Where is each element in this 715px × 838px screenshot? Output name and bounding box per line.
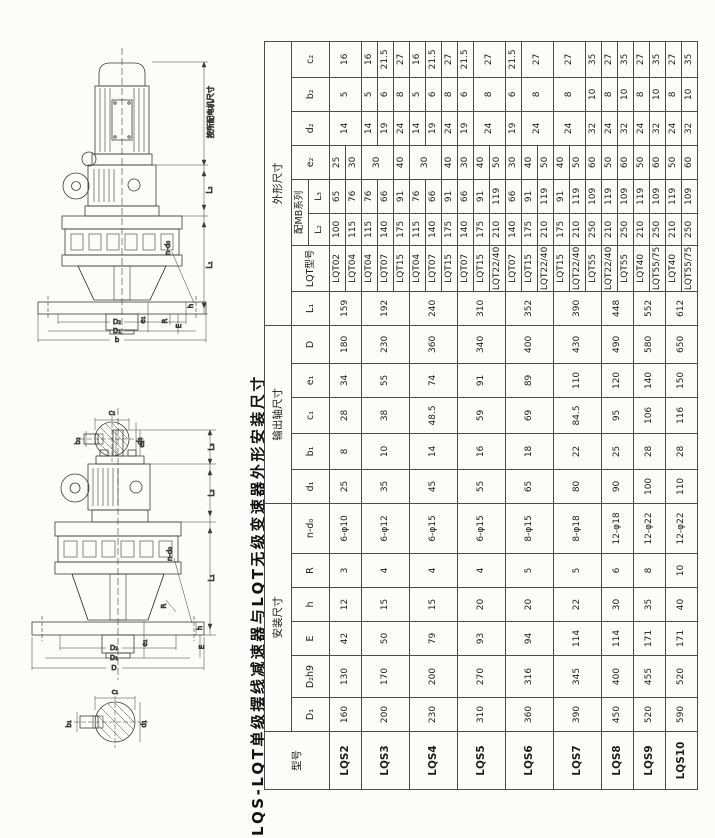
- table-cell: 30: [362, 145, 394, 179]
- table-cell: LQS10: [666, 732, 698, 790]
- table-cell: 66: [458, 179, 474, 213]
- dim-label: b₁: [65, 720, 73, 727]
- table-cell: 390: [554, 698, 602, 732]
- table-cell: 310: [458, 291, 506, 325]
- table-cell: c₂: [292, 41, 330, 77]
- table-cell: 22: [554, 588, 602, 622]
- table-cell: 8: [442, 77, 458, 111]
- table-cell: 10: [650, 77, 666, 111]
- table-cell: 3: [330, 554, 362, 588]
- table-cell: 210: [570, 213, 586, 245]
- table-cell: 10: [682, 77, 698, 111]
- table-cell: 55: [458, 469, 506, 503]
- table-cell: d₁: [292, 469, 330, 503]
- dim-label: R: [161, 318, 169, 323]
- table-cell: 8: [602, 77, 618, 111]
- table-cell: 40: [394, 145, 410, 179]
- dim-label: D₁: [110, 654, 118, 662]
- dim-label: D₂: [110, 644, 118, 652]
- table-cell: 25: [330, 145, 346, 179]
- table-cell: LQT07: [378, 245, 394, 291]
- table-cell: 552: [634, 291, 666, 325]
- table-cell: 42: [330, 622, 362, 656]
- table-cell: L₃: [309, 179, 330, 213]
- table-cell: 21.5: [426, 41, 442, 77]
- dim-label: n-d₀: [164, 241, 172, 255]
- table-cell: 24: [666, 111, 682, 145]
- table-cell: 210: [634, 213, 650, 245]
- table-cell: 32: [682, 111, 698, 145]
- table-cell: 345: [554, 656, 602, 698]
- table-cell: 8: [522, 77, 554, 111]
- table-cell: 360: [410, 325, 458, 363]
- table-cell: 10: [618, 77, 634, 111]
- table-cell: LQS6: [506, 732, 554, 790]
- table-cell: 450: [602, 698, 634, 732]
- table-cell: 119: [570, 179, 586, 213]
- table-cell: 580: [634, 325, 666, 363]
- table-cell: 22: [554, 433, 602, 469]
- table-cell: LQT22/40: [538, 245, 554, 291]
- table-cell: 119: [634, 179, 650, 213]
- dim-label: D₂: [113, 318, 121, 326]
- table-cell: 35: [634, 588, 666, 622]
- table-cell: 12-φ22: [634, 503, 666, 553]
- table-cell: 69: [506, 397, 554, 433]
- table-cell: 159: [330, 291, 362, 325]
- table-cell: 79: [410, 622, 458, 656]
- table-cell: 106: [634, 397, 666, 433]
- table-cell: 10: [362, 433, 410, 469]
- table-cell: 91: [394, 179, 410, 213]
- table-cell: 90: [602, 469, 634, 503]
- table-cell: b₂: [292, 77, 330, 111]
- dim-label: E: [175, 324, 183, 328]
- table-cell: 91: [458, 363, 506, 397]
- table-cell: 27: [602, 41, 618, 77]
- table-cell: 40: [666, 588, 698, 622]
- table-cell: 115: [362, 213, 378, 245]
- table-cell: 59: [458, 397, 506, 433]
- dimension-table: 型号安装尺寸输出轴尺寸外形尺寸D₁D₂h9EhRn-d₀d₁b₁c₁e₁DL₁L…: [264, 41, 698, 790]
- dim-label: L₃: [207, 443, 216, 450]
- table-cell: LQT02: [330, 245, 346, 291]
- dim-label: L₁: [207, 574, 216, 581]
- table-cell: 119: [666, 179, 682, 213]
- table-cell: LQT15: [522, 245, 538, 291]
- table-cell: 14: [330, 111, 362, 145]
- table-cell: 175: [394, 213, 410, 245]
- table-cell: 8-φ18: [554, 503, 602, 553]
- dim-label: c₁: [112, 688, 119, 696]
- table-cell: 18: [506, 433, 554, 469]
- dim-label: D₁: [113, 327, 121, 335]
- table-cell: 27: [522, 41, 554, 77]
- table-cell: 27: [634, 41, 650, 77]
- table-cell: 455: [634, 656, 666, 698]
- table-cell: 20: [458, 588, 506, 622]
- table-cell: 配MB系列: [292, 179, 309, 245]
- table-cell: LQT55/75: [682, 245, 698, 291]
- table-cell: 109: [682, 179, 698, 213]
- table-cell: L₁: [292, 291, 330, 325]
- table-cell: LQT40: [666, 245, 682, 291]
- dim-label: E: [198, 645, 206, 649]
- table-cell: LQT55: [586, 245, 602, 291]
- table-cell: 340: [458, 325, 506, 363]
- table-cell: 5: [330, 77, 362, 111]
- table-cell: 28: [330, 397, 362, 433]
- table-cell: e₂: [292, 145, 330, 179]
- table-cell: 590: [666, 698, 698, 732]
- table-cell: e₁: [292, 363, 330, 397]
- table-cell: LQT07: [458, 245, 474, 291]
- table-cell: 650: [666, 325, 698, 363]
- table-cell: E: [292, 622, 330, 656]
- table-cell: 520: [666, 656, 698, 698]
- table-cell: 21.5: [458, 41, 474, 77]
- table-cell: 66: [426, 179, 442, 213]
- table-cell: 240: [410, 291, 458, 325]
- table-cell: 50: [666, 145, 682, 179]
- dim-label: h: [196, 626, 204, 630]
- table-cell: 19: [458, 111, 474, 145]
- table-cell: 390: [554, 291, 602, 325]
- table-cell: 12-φ22: [666, 503, 698, 553]
- dim-label: e₁: [139, 316, 147, 323]
- table-cell: 65: [330, 179, 346, 213]
- table-cell: 316: [506, 656, 554, 698]
- table-cell: 32: [650, 111, 666, 145]
- table-cell: 5: [506, 554, 554, 588]
- table-cell: 24: [634, 111, 650, 145]
- table-cell: 250: [618, 213, 634, 245]
- table-cell: 250: [586, 213, 602, 245]
- table-cell: 27: [442, 41, 458, 77]
- table-cell: LQS7: [554, 732, 602, 790]
- table-cell: 6: [506, 77, 522, 111]
- table-cell: 6: [378, 77, 394, 111]
- table-cell: 20: [506, 588, 554, 622]
- table-cell: 50: [570, 145, 586, 179]
- table-cell: 140: [634, 363, 666, 397]
- table-cell: 8: [394, 77, 410, 111]
- table-cell: 35: [618, 41, 634, 77]
- dim-label: L₂: [207, 489, 216, 496]
- table-cell: 50: [362, 622, 410, 656]
- table-cell: 310: [458, 698, 506, 732]
- table-cell: 45: [410, 469, 458, 503]
- table-cell: 28: [634, 433, 666, 469]
- table-cell: 40: [442, 145, 458, 179]
- catalog-page: 按所配电机尺寸 L₂ L₁ n-d₀ h R E e₁ D₂ D₁ b: [0, 0, 715, 838]
- table-cell: 24: [522, 111, 554, 145]
- table-cell: 200: [362, 698, 410, 732]
- table-cell: 14: [410, 111, 426, 145]
- table-cell: 171: [666, 622, 698, 656]
- dim-label: h: [187, 304, 195, 308]
- table-cell: LQS4: [410, 732, 458, 790]
- table-cell: 94: [506, 622, 554, 656]
- table-cell: 24: [474, 111, 506, 145]
- table-cell: LQT22/40: [490, 245, 506, 291]
- table-cell: 型号: [265, 732, 330, 790]
- table-cell: 400: [602, 656, 634, 698]
- table-cell: b₁: [292, 433, 330, 469]
- table-cell: D₂h9: [292, 656, 330, 698]
- table-cell: 12: [330, 588, 362, 622]
- table-cell: 8: [330, 433, 362, 469]
- table-cell: 250: [682, 213, 698, 245]
- table-cell: 150: [666, 363, 698, 397]
- table-cell: 15: [362, 588, 410, 622]
- table-cell: 110: [554, 363, 602, 397]
- table-cell: 35: [362, 469, 410, 503]
- dim-label: c₂: [109, 409, 116, 417]
- table-cell: 84.5: [554, 397, 602, 433]
- table-cell: 210: [666, 213, 682, 245]
- drawing-variator-reducer: e₂ L₃ L₂ L₁ n-d₀ h R E e₁ D₂ D₁ D: [32, 408, 216, 680]
- dim-label: D: [111, 664, 116, 672]
- table-cell: 8: [666, 77, 682, 111]
- table-cell: 210: [602, 213, 618, 245]
- table-cell: 8: [474, 77, 506, 111]
- table-cell: 95: [602, 397, 634, 433]
- table-cell: 27: [554, 41, 586, 77]
- table-cell: 32: [618, 111, 634, 145]
- dim-label: R: [160, 603, 168, 608]
- table-cell: 109: [618, 179, 634, 213]
- table-cell: 35: [682, 41, 698, 77]
- table-cell: 6-φ12: [362, 503, 410, 553]
- table-cell: 170: [362, 656, 410, 698]
- table-cell: 30: [346, 145, 362, 179]
- table-cell: LQT40: [634, 245, 650, 291]
- table-cell: 210: [538, 213, 554, 245]
- dim-label: 按所配电机尺寸: [205, 85, 215, 138]
- table-cell: LQT15: [394, 245, 410, 291]
- table-cell: 8: [554, 77, 586, 111]
- table-cell: 76: [362, 179, 378, 213]
- table-cell: h: [292, 588, 330, 622]
- dim-label: b₂: [74, 437, 82, 444]
- table-cell: LQT型号: [292, 245, 330, 291]
- table-cell: 27: [474, 41, 506, 77]
- table-cell: 80: [554, 469, 602, 503]
- table-cell: 5: [554, 554, 602, 588]
- dim-label: n-d₀: [166, 547, 174, 561]
- table-cell: 180: [330, 325, 362, 363]
- table-cell: 119: [490, 179, 506, 213]
- table-cell: 16: [362, 41, 378, 77]
- table-cell: 93: [458, 622, 506, 656]
- table-cell: 35: [586, 41, 602, 77]
- dim-label: d₁: [140, 720, 148, 727]
- table-cell: 119: [538, 179, 554, 213]
- table-cell: 27: [394, 41, 410, 77]
- table-cell: R: [292, 554, 330, 588]
- table-cell: c₁: [292, 397, 330, 433]
- table-cell: D: [292, 325, 330, 363]
- table-cell: 6: [458, 77, 474, 111]
- table-cell: 安装尺寸: [265, 503, 292, 731]
- table-cell: 8: [634, 77, 650, 111]
- table-cell: 175: [474, 213, 490, 245]
- table-cell: 50: [490, 145, 506, 179]
- table-cell: 91: [442, 179, 458, 213]
- table-cell: 10: [666, 554, 698, 588]
- table-cell: 5: [410, 77, 426, 111]
- table-cell: 91: [522, 179, 538, 213]
- table-cell: 27: [666, 41, 682, 77]
- table-cell: 430: [554, 325, 602, 363]
- table-cell: LQT07: [426, 245, 442, 291]
- table-cell: 35: [650, 41, 666, 77]
- table-cell: L₂: [309, 213, 330, 245]
- dimension-table-wrap: 型号安装尺寸输出轴尺寸外形尺寸D₁D₂h9EhRn-d₀d₁b₁c₁e₁DL₁L…: [264, 40, 675, 790]
- table-cell: 24: [554, 111, 586, 145]
- dim-label: e₂: [138, 440, 146, 447]
- table-cell: 171: [634, 622, 666, 656]
- table-cell: 50: [538, 145, 554, 179]
- table-cell: 30: [506, 145, 522, 179]
- table-cell: 76: [346, 179, 362, 213]
- table-cell: 16: [410, 41, 426, 77]
- table-cell: 8: [634, 554, 666, 588]
- table-cell: 12-φ18: [602, 503, 634, 553]
- table-cell: 40: [554, 145, 570, 179]
- table-cell: 30: [458, 145, 474, 179]
- table-cell: 612: [666, 291, 698, 325]
- table-cell: 116: [666, 397, 698, 433]
- table-cell: 28: [666, 433, 698, 469]
- dim-label: e₁: [141, 639, 149, 646]
- table-cell: 32: [586, 111, 602, 145]
- table-cell: LQS9: [634, 732, 666, 790]
- table-cell: d₂: [292, 111, 330, 145]
- shaft-detail-b2: c₂ b₂ d₂: [74, 409, 144, 462]
- table-cell: 5: [362, 77, 378, 111]
- table-cell: 16: [458, 433, 506, 469]
- table-cell: 24: [394, 111, 410, 145]
- dim-label: L₂: [205, 186, 214, 193]
- table-cell: 40: [474, 145, 490, 179]
- table-cell: 6-φ10: [330, 503, 362, 553]
- table-cell: 175: [442, 213, 458, 245]
- table-cell: 40: [522, 145, 538, 179]
- table-cell: 120: [602, 363, 634, 397]
- table-cell: 200: [410, 656, 458, 698]
- table-cell: 4: [410, 554, 458, 588]
- table-cell: 30: [602, 588, 634, 622]
- table-cell: 8-φ15: [506, 503, 554, 553]
- table-cell: LQT55/75: [650, 245, 666, 291]
- table-cell: 19: [506, 111, 522, 145]
- table-cell: 66: [378, 179, 394, 213]
- table-cell: 115: [410, 213, 426, 245]
- drawing-motor-reducer: 按所配电机尺寸 L₂ L₁ n-d₀ h R E e₁ D₂ D₁ b: [38, 48, 215, 344]
- table-cell: 230: [410, 698, 458, 732]
- table-cell: 25: [602, 433, 634, 469]
- table-cell: 114: [554, 622, 602, 656]
- table-cell: 输出轴尺寸: [265, 325, 292, 503]
- table-cell: LQT15: [442, 245, 458, 291]
- table-cell: LQS8: [602, 732, 634, 790]
- table-cell: 19: [378, 111, 394, 145]
- table-cell: 175: [554, 213, 570, 245]
- table-cell: LQT15: [474, 245, 490, 291]
- table-cell: 160: [330, 698, 362, 732]
- table-cell: 48.5: [410, 397, 458, 433]
- table-cell: 4: [362, 554, 410, 588]
- table-cell: 50: [602, 145, 618, 179]
- table-cell: D₁: [292, 698, 330, 732]
- table-cell: 91: [554, 179, 570, 213]
- table-cell: 16: [330, 41, 362, 77]
- table-cell: 14: [410, 433, 458, 469]
- table-cell: 250: [650, 213, 666, 245]
- table-cell: 175: [522, 213, 538, 245]
- table-cell: 60: [618, 145, 634, 179]
- table-cell: 6: [602, 554, 634, 588]
- table-cell: 140: [378, 213, 394, 245]
- table-cell: 14: [362, 111, 378, 145]
- table-cell: LQT07: [506, 245, 522, 291]
- table-cell: 60: [650, 145, 666, 179]
- table-cell: LQS3: [362, 732, 410, 790]
- table-cell: 352: [506, 291, 554, 325]
- table-cell: LQS2: [330, 732, 362, 790]
- table-cell: 10: [586, 77, 602, 111]
- table-cell: 60: [682, 145, 698, 179]
- dim-label: L₁: [205, 261, 214, 268]
- table-cell: 100: [634, 469, 666, 503]
- table-cell: 230: [362, 325, 410, 363]
- table-cell: 100: [330, 213, 346, 245]
- table-cell: n-d₀: [292, 503, 330, 553]
- table-cell: 91: [474, 179, 490, 213]
- table-cell: 270: [458, 656, 506, 698]
- table-cell: LQT22/40: [570, 245, 586, 291]
- table-cell: 119: [602, 179, 618, 213]
- table-cell: 4: [458, 554, 506, 588]
- table-cell: 30: [410, 145, 442, 179]
- table-cell: 490: [602, 325, 634, 363]
- table-cell: LQT04: [346, 245, 362, 291]
- table-cell: 520: [634, 698, 666, 732]
- table-cell: 60: [586, 145, 602, 179]
- table-cell: 65: [506, 469, 554, 503]
- table-cell: 109: [650, 179, 666, 213]
- shaft-detail-b1: c₁ b₁ d₁: [65, 688, 148, 748]
- table-cell: 140: [426, 213, 442, 245]
- table-cell: 21.5: [378, 41, 394, 77]
- table-cell: 400: [506, 325, 554, 363]
- table-cell: 50: [634, 145, 650, 179]
- table-cell: 66: [506, 179, 522, 213]
- table-cell: 140: [458, 213, 474, 245]
- table-cell: 15: [410, 588, 458, 622]
- table-cell: 115: [346, 213, 362, 245]
- table-cell: 210: [490, 213, 506, 245]
- table-cell: 38: [362, 397, 410, 433]
- table-cell: 140: [506, 213, 522, 245]
- table-cell: LQT04: [362, 245, 378, 291]
- table-cell: 360: [506, 698, 554, 732]
- table-cell: LQT22/40: [602, 245, 618, 291]
- table-cell: 6-φ15: [410, 503, 458, 553]
- dim-label: b: [115, 336, 120, 344]
